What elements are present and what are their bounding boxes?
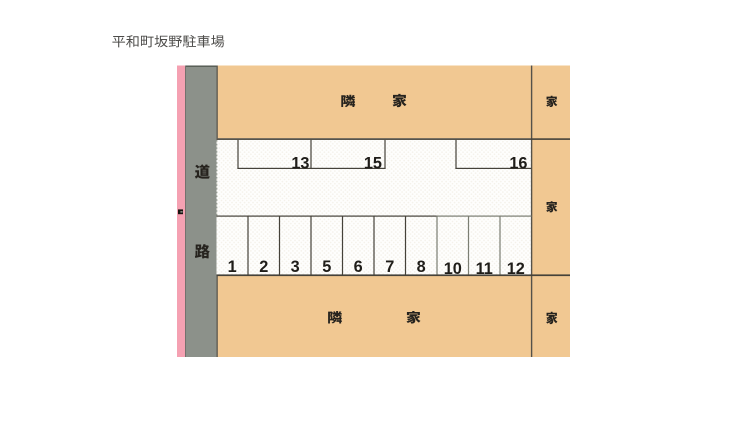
svg-text:11: 11 [476, 260, 493, 278]
svg-text:12: 12 [507, 260, 525, 278]
svg-text:8: 8 [417, 258, 426, 276]
svg-text:7: 7 [385, 258, 394, 276]
svg-text:6: 6 [354, 258, 363, 276]
svg-text:1: 1 [228, 258, 237, 276]
svg-text:5: 5 [322, 258, 331, 276]
svg-text:2: 2 [259, 258, 268, 276]
svg-text:13: 13 [291, 154, 309, 172]
svg-text:10: 10 [444, 260, 462, 278]
svg-text:15: 15 [364, 154, 382, 172]
svg-text:3: 3 [291, 258, 300, 276]
svg-text:16: 16 [509, 154, 527, 172]
